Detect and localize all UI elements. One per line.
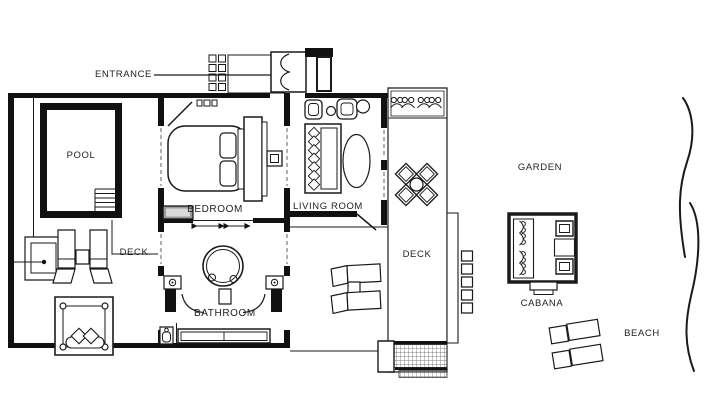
cabana-step [530, 282, 557, 290]
cabana-label: CABANA [516, 298, 568, 309]
sun-lounger [90, 230, 112, 283]
sun-lounger [331, 291, 381, 314]
garden-label: GARDEN [517, 162, 563, 173]
living-room-door-swing [357, 214, 376, 230]
living-room-label: LIVING ROOM [293, 201, 359, 212]
bedroom-label: BEDROOM [179, 204, 251, 215]
armchairs-and-tables [305, 99, 370, 119]
deck-edge-strip [447, 213, 458, 343]
bathroom-counter [178, 329, 270, 343]
outdoor-shower [14, 237, 62, 280]
beach-label: BEACH [622, 328, 662, 339]
vanity-left [164, 276, 181, 312]
entrance-walkway [154, 48, 333, 93]
living-room-furniture [305, 99, 370, 193]
daybed [55, 297, 113, 355]
bath-mat [219, 289, 231, 304]
vanity-right [266, 276, 283, 312]
entrance-label: ENTRANCE [94, 69, 152, 80]
cabana-chairs [555, 221, 575, 274]
beach-loungers [549, 319, 603, 368]
deck-left-label: DECK [116, 247, 152, 258]
bathroom-label: BATHROOM [194, 308, 254, 319]
toilet [160, 323, 177, 344]
deck-left-furniture [14, 230, 113, 355]
entrance-double-door [271, 52, 306, 92]
nightstand [267, 151, 282, 166]
floor-plan-canvas: ENTRANCE POOL BEDROOM LIVING ROOM BATHRO… [0, 0, 704, 420]
deck-right-label: DECK [399, 249, 435, 260]
stepping-stones [462, 251, 473, 313]
closet-marks [197, 100, 217, 106]
cabana [509, 214, 576, 295]
beach-steps [378, 341, 447, 378]
bedroom-door-swing [168, 102, 192, 126]
side-table [76, 250, 89, 264]
shoreline-waves [680, 98, 698, 371]
pool-label: POOL [59, 150, 103, 161]
coffee-table [343, 135, 370, 188]
bedroom-furniture [163, 100, 282, 219]
round-bathtub [203, 246, 243, 286]
bed [168, 117, 267, 201]
bathroom-fixtures [160, 246, 283, 344]
sofa [305, 124, 341, 193]
